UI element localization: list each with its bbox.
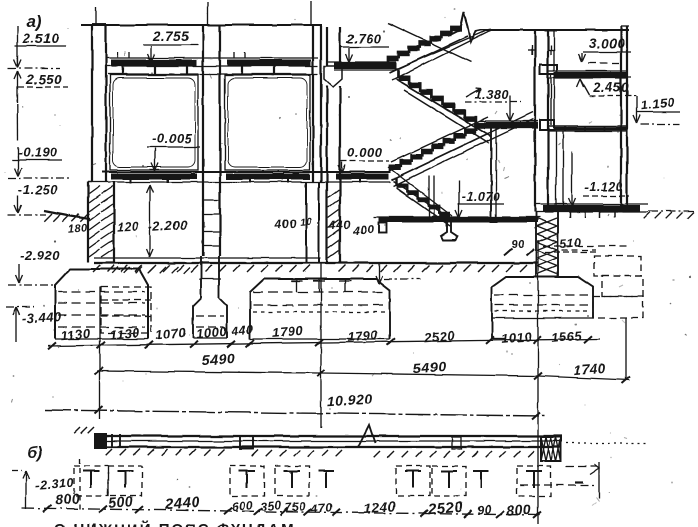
svg-text:1010: 1010 xyxy=(501,329,533,347)
svg-text:5490: 5490 xyxy=(413,358,447,376)
svg-text:-1.070: -1.070 xyxy=(462,190,500,204)
svg-text:2.450: 2.450 xyxy=(592,80,629,95)
svg-text:С НИЖНИЙ ПОЯС ФУНДАМ.: С НИЖНИЙ ПОЯС ФУНДАМ. xyxy=(54,520,301,527)
svg-text:1565: 1565 xyxy=(551,328,583,346)
svg-text:-2.920: -2.920 xyxy=(20,248,60,263)
svg-text:-2.200: -2.200 xyxy=(147,217,188,234)
svg-text:500: 500 xyxy=(108,493,134,511)
svg-text:1070: 1070 xyxy=(155,325,187,343)
svg-text:-0.005: -0.005 xyxy=(152,131,192,146)
svg-text:440: 440 xyxy=(327,217,350,233)
svg-text:600: 600 xyxy=(231,498,253,513)
svg-text:350: 350 xyxy=(259,498,281,513)
svg-text:1000: 1000 xyxy=(196,324,228,342)
svg-text:2520: 2520 xyxy=(423,328,456,346)
svg-text:800: 800 xyxy=(506,501,532,519)
svg-text:2.760: 2.760 xyxy=(345,31,381,46)
svg-text:2.510: 2.510 xyxy=(22,31,59,46)
svg-text:510: 510 xyxy=(559,235,582,251)
svg-text:а): а) xyxy=(26,12,41,31)
svg-text:-3.440: -3.440 xyxy=(21,309,62,326)
svg-text:90: 90 xyxy=(511,239,525,251)
svg-text:1790: 1790 xyxy=(272,323,304,341)
svg-text:2440: 2440 xyxy=(163,494,201,514)
svg-text:2520: 2520 xyxy=(426,499,464,519)
svg-text:2.550: 2.550 xyxy=(25,72,62,87)
svg-text:1130: 1130 xyxy=(109,325,140,343)
svg-text:440: 440 xyxy=(230,322,254,338)
svg-text:1240: 1240 xyxy=(363,498,397,516)
svg-text:10: 10 xyxy=(299,217,312,229)
svg-text:-1.250: -1.250 xyxy=(18,182,58,197)
svg-text:400: 400 xyxy=(273,216,296,232)
svg-text:400: 400 xyxy=(351,222,374,238)
svg-text:800: 800 xyxy=(55,490,81,508)
svg-text:1740: 1740 xyxy=(573,361,606,378)
svg-text:1790: 1790 xyxy=(347,327,379,345)
svg-text:-2.310: -2.310 xyxy=(35,476,74,493)
svg-text:3.000: 3.000 xyxy=(589,36,625,51)
svg-text:2.755: 2.755 xyxy=(152,29,189,44)
svg-text:90: 90 xyxy=(477,503,492,518)
svg-text:180: 180 xyxy=(67,222,88,235)
svg-text:120: 120 xyxy=(117,219,139,234)
svg-text:1130: 1130 xyxy=(60,326,91,344)
svg-text:10.920: 10.920 xyxy=(326,391,373,409)
svg-text:0.000: 0.000 xyxy=(347,145,382,160)
svg-text:-0.190: -0.190 xyxy=(18,145,58,160)
svg-text:б): б) xyxy=(27,445,42,462)
svg-text:-1.120: -1.120 xyxy=(585,180,623,194)
svg-text:750: 750 xyxy=(284,499,306,514)
svg-text:5490: 5490 xyxy=(202,350,236,368)
svg-text:470: 470 xyxy=(309,500,332,516)
